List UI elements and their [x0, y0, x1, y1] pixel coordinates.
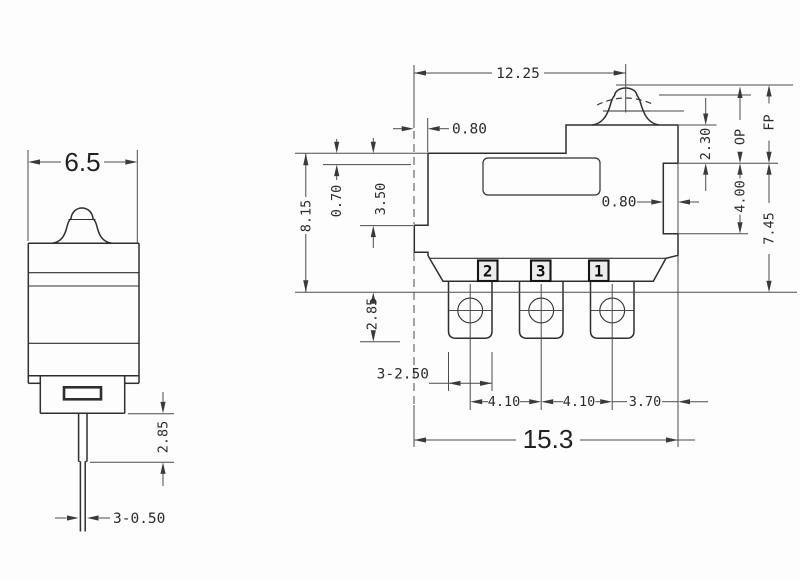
extension-lines: [295, 65, 793, 447]
pitch-right-label: 4.10: [563, 394, 596, 410]
terminal-number-3: 3: [536, 262, 546, 281]
terminal-width-dimension: 3-2.50: [377, 367, 492, 386]
top-width-label: 12.25: [496, 66, 540, 82]
overall-height-dimension: 7.45: [762, 163, 778, 292]
label-plate: [483, 158, 600, 195]
button-height-dimension: 2.30: [698, 98, 714, 191]
terminal-markings: 2 3 1: [478, 261, 609, 282]
drawing-canvas: 6.5: [0, 0, 800, 581]
notch-depth-label: 0.80: [602, 195, 637, 211]
side-pin-length-dimension: 2.85: [90, 392, 174, 486]
terminal-pitch-dimensions: 4.10 4.10 3.70: [470, 394, 708, 410]
side-width-dimension: 6.5: [28, 147, 137, 243]
pitch-left-label: 4.10: [488, 394, 521, 410]
overall-width-label: 15.3: [523, 424, 574, 454]
terminal-number-2: 2: [483, 262, 493, 281]
body-height-dimension: 8.15: [298, 153, 314, 292]
notch-depth-dimension: 0.80: [602, 195, 699, 211]
edge-offset-label: 3.70: [629, 394, 662, 410]
op-label: OP: [733, 129, 749, 145]
overall-width-dimension: 15.3: [414, 424, 695, 454]
notch-height-label: 4.00: [733, 180, 749, 213]
fp-label: FP: [762, 114, 778, 130]
fp-dimension: FP: [762, 85, 778, 163]
side-plunger-dome: [52, 208, 112, 243]
button-height-label: 2.30: [698, 128, 714, 161]
top-width-dimension: 12.25: [414, 66, 626, 82]
microswitch-technical-drawing: 6.5: [0, 0, 800, 581]
terminal-number-1: 1: [594, 262, 604, 281]
body-height-label: 8.15: [298, 200, 314, 233]
side-pin-width-dimension: 3-0.50: [55, 511, 165, 527]
side-view: 6.5: [28, 147, 174, 532]
left-step-dimension: 0.80: [393, 122, 487, 138]
lever-gap-dimension: 0.70: [329, 139, 345, 217]
op-dimension: OP: [733, 87, 749, 164]
side-pin-width-label: 3-0.50: [113, 511, 165, 527]
lever-gap-label: 0.70: [329, 185, 345, 218]
left-step-label: 0.80: [452, 122, 487, 138]
terminal-tabs: [449, 282, 635, 411]
side-pin-length-label: 2.85: [156, 421, 172, 454]
terminal-length-label: 2.85: [365, 298, 381, 331]
upper-height-label: 3.50: [373, 183, 389, 216]
side-terminal-pin: [79, 413, 87, 531]
overall-height-label: 7.45: [762, 212, 778, 245]
side-width-label: 6.5: [64, 147, 100, 177]
terminal-width-label: 3-2.50: [377, 367, 429, 383]
front-view: 2 3 1: [295, 64, 797, 454]
upper-height-dimension: 3.50: [371, 138, 389, 248]
terminal-length-dimension: 2.85: [365, 292, 381, 342]
notch-height-dimension: 4.00: [733, 163, 749, 233]
side-body: [28, 243, 139, 413]
